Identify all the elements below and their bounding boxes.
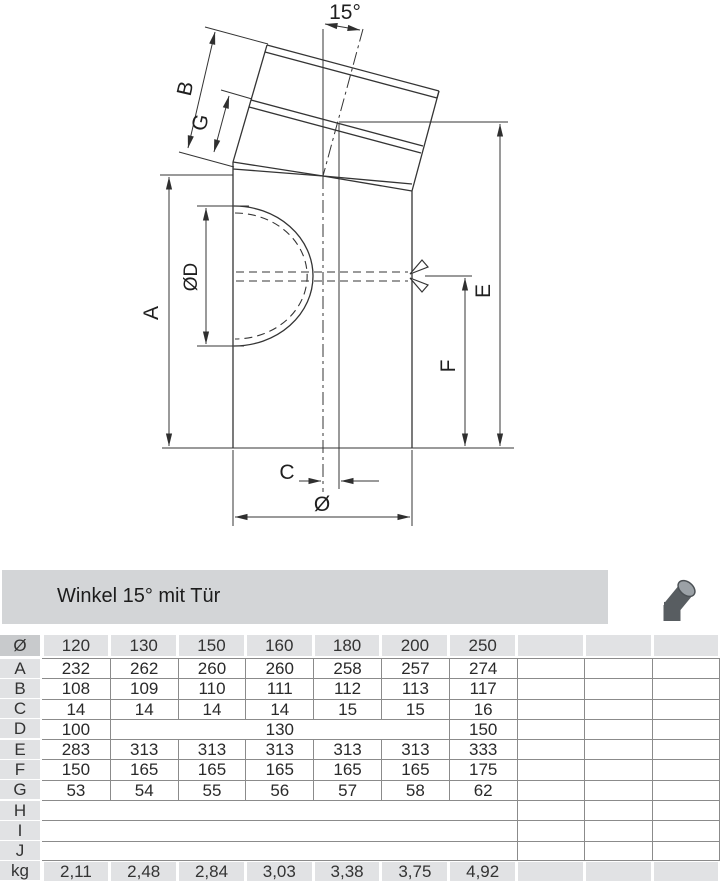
- header-cell: 120: [44, 635, 109, 656]
- spec-cell: [517, 678, 585, 698]
- spec-cell: 117: [449, 678, 517, 698]
- spec-cell: 111: [245, 678, 313, 698]
- datasheet-page: A B G ØD E: [0, 0, 720, 882]
- table-row-G: G53545556575862: [0, 780, 720, 800]
- row-label: F: [0, 760, 40, 779]
- weight-cell: 2,84: [179, 862, 244, 881]
- spec-cell: [517, 800, 585, 820]
- spec-cell: 15: [313, 699, 381, 719]
- weight-cell: [654, 862, 719, 881]
- spec-cell: 14: [178, 699, 246, 719]
- spec-cell: [584, 800, 652, 820]
- spec-cell: [584, 719, 652, 739]
- spec-cell: 130: [110, 719, 449, 739]
- spec-cell: 16: [449, 699, 517, 719]
- spec-cell: 110: [178, 678, 246, 698]
- dimension-a: A: [140, 175, 233, 446]
- spec-cell: 232: [42, 658, 110, 678]
- weight-cell: 3,03: [247, 862, 312, 881]
- spec-cell: [584, 678, 652, 698]
- spec-cell: [42, 800, 517, 820]
- spec-cell: [652, 800, 720, 820]
- spec-cell: 55: [178, 780, 246, 800]
- spec-cell: 165: [313, 759, 381, 779]
- spec-cell: [584, 780, 652, 800]
- row-label: Ø: [0, 635, 40, 656]
- dimension-c: C: [279, 461, 379, 484]
- spec-cell: 313: [178, 739, 246, 759]
- technical-drawing: A B G ØD E: [0, 0, 720, 560]
- table-row-C: C14141414151516: [0, 699, 720, 719]
- dim-label-diameter: Ø: [314, 493, 330, 516]
- row-label: B: [0, 679, 40, 698]
- dimension-angle: 15°: [325, 1, 361, 30]
- elbow-pipe-icon: [655, 574, 707, 622]
- row-label: D: [0, 719, 40, 738]
- weight-cell: 3,38: [315, 862, 380, 881]
- spec-cell: [42, 841, 517, 861]
- header-cell: 250: [450, 635, 515, 656]
- table-row-J: J: [0, 841, 720, 861]
- spec-cell: [584, 820, 652, 840]
- row-label: G: [0, 780, 40, 799]
- weight-cell: 2,48: [111, 862, 176, 881]
- spec-cell: 258: [313, 658, 381, 678]
- spec-cell: [584, 759, 652, 779]
- spec-cell: [517, 658, 585, 678]
- header-cell: 180: [315, 635, 380, 656]
- spec-cell: 53: [42, 780, 110, 800]
- dim-label-e: E: [472, 284, 495, 298]
- header-cell: 150: [179, 635, 244, 656]
- table-row-Ø: Ø120130150160180200250: [0, 635, 720, 658]
- spec-cell: [652, 780, 720, 800]
- spec-cell: 57: [313, 780, 381, 800]
- spec-cell: 283: [42, 739, 110, 759]
- spec-cell: 274: [449, 658, 517, 678]
- spec-cell: [584, 658, 652, 678]
- spec-cell: [517, 719, 585, 739]
- spec-cell: [652, 739, 720, 759]
- table-row-F: F150165165165165165175: [0, 759, 720, 779]
- table-row-D: D100130150: [0, 719, 720, 739]
- spec-cell: 15: [381, 699, 449, 719]
- spec-cell: [517, 820, 585, 840]
- dim-label-c: C: [279, 461, 294, 484]
- header-cell: [518, 635, 583, 656]
- row-label: I: [0, 821, 40, 840]
- dimension-f: F: [425, 276, 472, 446]
- spec-cell: 175: [449, 759, 517, 779]
- spec-cell: [517, 780, 585, 800]
- spec-cell: 257: [381, 658, 449, 678]
- table-row-A: A232262260260258257274: [0, 658, 720, 678]
- spec-table: Ø120130150160180200250A23226226026025825…: [0, 635, 720, 882]
- table-row-kg: kg2,112,482,843,033,383,754,92: [0, 861, 720, 882]
- dimension-door-diameter: ØD: [181, 206, 249, 346]
- spec-cell: 58: [381, 780, 449, 800]
- row-label: E: [0, 740, 40, 759]
- spec-cell: 165: [245, 759, 313, 779]
- row-label: H: [0, 801, 40, 820]
- weight-cell: [518, 862, 583, 881]
- inspection-door: [234, 206, 408, 346]
- weight-cell: 4,92: [450, 862, 515, 881]
- spec-cell: 333: [449, 739, 517, 759]
- spec-cell: 113: [381, 678, 449, 698]
- spec-cell: 313: [381, 739, 449, 759]
- header-cell: [586, 635, 651, 656]
- spec-cell: 14: [42, 699, 110, 719]
- spec-cell: 109: [110, 678, 178, 698]
- spec-cell: 14: [245, 699, 313, 719]
- pipe-elbow-outline: [162, 45, 514, 448]
- weight-cell: 3,75: [382, 862, 447, 881]
- spec-cell: 260: [178, 658, 246, 678]
- dimension-b: B: [173, 27, 268, 167]
- dim-label-a: A: [140, 306, 163, 320]
- spec-cell: 313: [110, 739, 178, 759]
- spec-cell: [42, 820, 517, 840]
- dim-label-angle: 15°: [329, 1, 361, 24]
- centerlines: [323, 29, 363, 492]
- header-cell: [654, 635, 719, 656]
- header-cell: 160: [247, 635, 312, 656]
- spec-cell: [652, 658, 720, 678]
- table-row-E: E283313313313313313333: [0, 739, 720, 759]
- spec-cell: [652, 719, 720, 739]
- spec-cell: 150: [42, 759, 110, 779]
- header-cell: 130: [111, 635, 176, 656]
- spec-cell: 150: [449, 719, 517, 739]
- spec-cell: 62: [449, 780, 517, 800]
- spec-cell: 313: [313, 739, 381, 759]
- spec-cell: [652, 678, 720, 698]
- spec-cell: 14: [110, 699, 178, 719]
- dim-label-g: G: [188, 112, 214, 133]
- spec-cell: [652, 699, 720, 719]
- spec-cell: [517, 759, 585, 779]
- page-title: Winkel 15° mit Tür: [57, 585, 220, 608]
- weight-cell: 2,11: [44, 862, 109, 881]
- dim-label-b: B: [173, 79, 199, 98]
- spec-cell: [517, 699, 585, 719]
- spec-cell: [584, 739, 652, 759]
- spec-cell: [652, 841, 720, 861]
- header-cell: 200: [382, 635, 447, 656]
- row-label: kg: [0, 861, 40, 880]
- spec-cell: 165: [178, 759, 246, 779]
- weight-cell: [586, 862, 651, 881]
- row-label: A: [0, 659, 40, 678]
- spec-cell: 313: [245, 739, 313, 759]
- spec-cell: 262: [110, 658, 178, 678]
- spec-cell: [517, 739, 585, 759]
- spec-cell: 165: [381, 759, 449, 779]
- spec-cell: 54: [110, 780, 178, 800]
- dimension-g: G: [188, 90, 252, 152]
- spec-cell: 108: [42, 678, 110, 698]
- table-row-H: H: [0, 800, 720, 820]
- spec-cell: 260: [245, 658, 313, 678]
- dim-label-door-diameter: ØD: [181, 263, 202, 292]
- row-label: J: [0, 841, 40, 860]
- spec-cell: [584, 699, 652, 719]
- spec-cell: 56: [245, 780, 313, 800]
- spec-cell: 165: [110, 759, 178, 779]
- spec-cell: [517, 841, 585, 861]
- dim-label-f: F: [437, 360, 460, 373]
- table-row-I: I: [0, 820, 720, 840]
- spec-cell: 100: [42, 719, 110, 739]
- table-row-B: B108109110111112113117: [0, 678, 720, 698]
- spec-cell: 112: [313, 678, 381, 698]
- spec-cell: [652, 820, 720, 840]
- title-bar: Winkel 15° mit Tür: [2, 570, 608, 624]
- spec-cell: [652, 759, 720, 779]
- spec-cell: [584, 841, 652, 861]
- row-label: C: [0, 699, 40, 718]
